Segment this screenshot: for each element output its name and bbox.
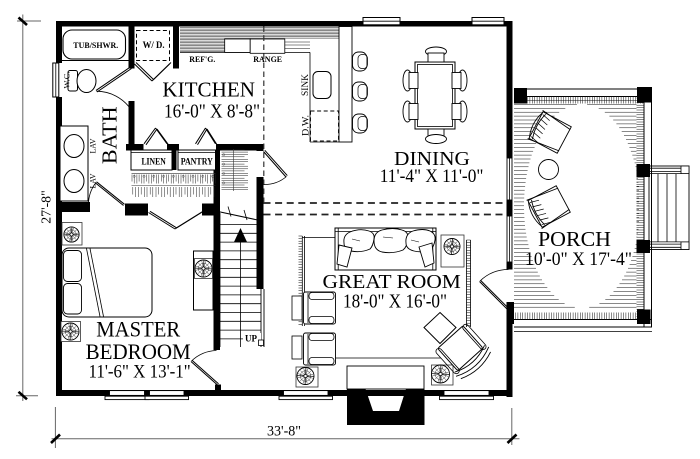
svg-text:LAV: LAV	[88, 173, 98, 189]
svg-text:KITCHEN: KITCHEN	[162, 79, 255, 102]
svg-text:11'-6" X 13'-1": 11'-6" X 13'-1"	[89, 362, 191, 383]
svg-text:33'-8": 33'-8"	[267, 424, 301, 440]
svg-text:27'-8": 27'-8"	[40, 190, 55, 224]
svg-text:W/ D.: W/ D.	[143, 40, 165, 50]
svg-text:GREAT ROOM: GREAT ROOM	[323, 271, 462, 293]
svg-text:SINK: SINK	[300, 73, 310, 96]
svg-text:PORCH: PORCH	[538, 227, 611, 251]
svg-text:TUB/SHWR.: TUB/SHWR.	[73, 40, 118, 50]
svg-text:UP: UP	[245, 335, 257, 345]
svg-text:REF'G.: REF'G.	[189, 54, 215, 64]
svg-text:MASTER: MASTER	[96, 317, 180, 341]
svg-text:11'-4" X 11'-0": 11'-4" X 11'-0"	[380, 166, 484, 187]
svg-text:RANGE: RANGE	[253, 54, 282, 64]
svg-text:D.W.: D.W.	[301, 115, 311, 136]
svg-text:10'-0" X 17'-4": 10'-0" X 17'-4"	[525, 249, 632, 270]
svg-text:LINEN: LINEN	[141, 157, 166, 167]
svg-text:BEDROOM: BEDROOM	[86, 340, 191, 364]
svg-text:16'-0" X 8'-8": 16'-0" X 8'-8"	[164, 102, 260, 123]
svg-text:W.C.: W.C.	[61, 72, 71, 89]
svg-text:BATH: BATH	[97, 106, 121, 164]
svg-text:PANTRY: PANTRY	[181, 157, 214, 167]
svg-text:LAV: LAV	[88, 138, 98, 154]
svg-text:18'-0" X 16'-0": 18'-0" X 16'-0"	[343, 292, 447, 313]
